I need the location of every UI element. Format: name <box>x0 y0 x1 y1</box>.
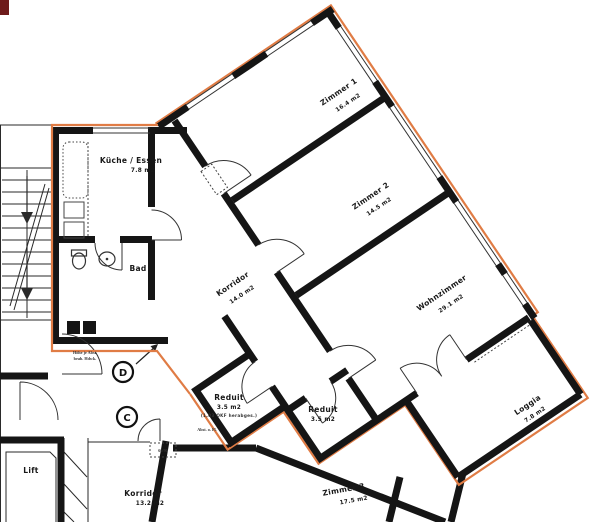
door-swings-left <box>20 210 182 441</box>
room-label-reduit1: Reduit <box>214 393 244 402</box>
plumbing-block <box>83 321 96 334</box>
marker-letter-c: C <box>123 413 130 424</box>
stair-arrow-icon <box>21 212 33 224</box>
room-label-bad: Bad <box>129 264 146 273</box>
tiny-annotation-2: beab. Hdwk. <box>74 356 97 361</box>
room-area-reduit2: 3.5 m2 <box>311 417 335 423</box>
room-area-korridor-unten: 13.2 m2 <box>136 501 165 507</box>
plumbing-block <box>67 321 80 334</box>
room-area-reduit1: 3.5 m2 <box>217 405 241 411</box>
kitchen-appliances <box>64 202 84 238</box>
tiny-annotation-4: 60/90 <box>158 448 168 453</box>
room-area-kueche: 7.8 m2 <box>131 168 155 174</box>
room-label-korridor-unten: Korridor <box>124 489 161 498</box>
room-area-zimmer3: 17.5 m2 <box>339 496 368 507</box>
dashed-details <box>88 142 176 457</box>
letter-markers: D C <box>113 362 137 427</box>
toilet-icon <box>73 253 86 269</box>
floor-plan-svg: Zimmer 1 16.4 m2 Zimmer 2 14.5 m2 Wohnzi… <box>0 0 600 522</box>
scan-corner-mark <box>0 0 9 15</box>
tiny-annotation-3: Abst. o. Fl. <box>197 427 216 432</box>
kitchen-counter <box>63 142 88 198</box>
room-label-reduit2: Reduit <box>308 405 338 414</box>
marker-letter-d: D <box>119 368 127 379</box>
kitchen-window <box>93 128 150 133</box>
room-note-reduit1: (1,03 OKF herabges.) <box>201 413 257 418</box>
stair-arrow-icon <box>21 288 33 300</box>
room-label-lift: Lift <box>23 466 39 475</box>
room-label-kueche: Küche / Essen <box>100 156 162 165</box>
floor-plan-page: Zimmer 1 16.4 m2 Zimmer 2 14.5 m2 Wohnzi… <box>0 0 600 522</box>
tiny-annotation-1: Höhe je Abst. <box>73 350 97 355</box>
sink-drain-icon <box>106 258 109 261</box>
